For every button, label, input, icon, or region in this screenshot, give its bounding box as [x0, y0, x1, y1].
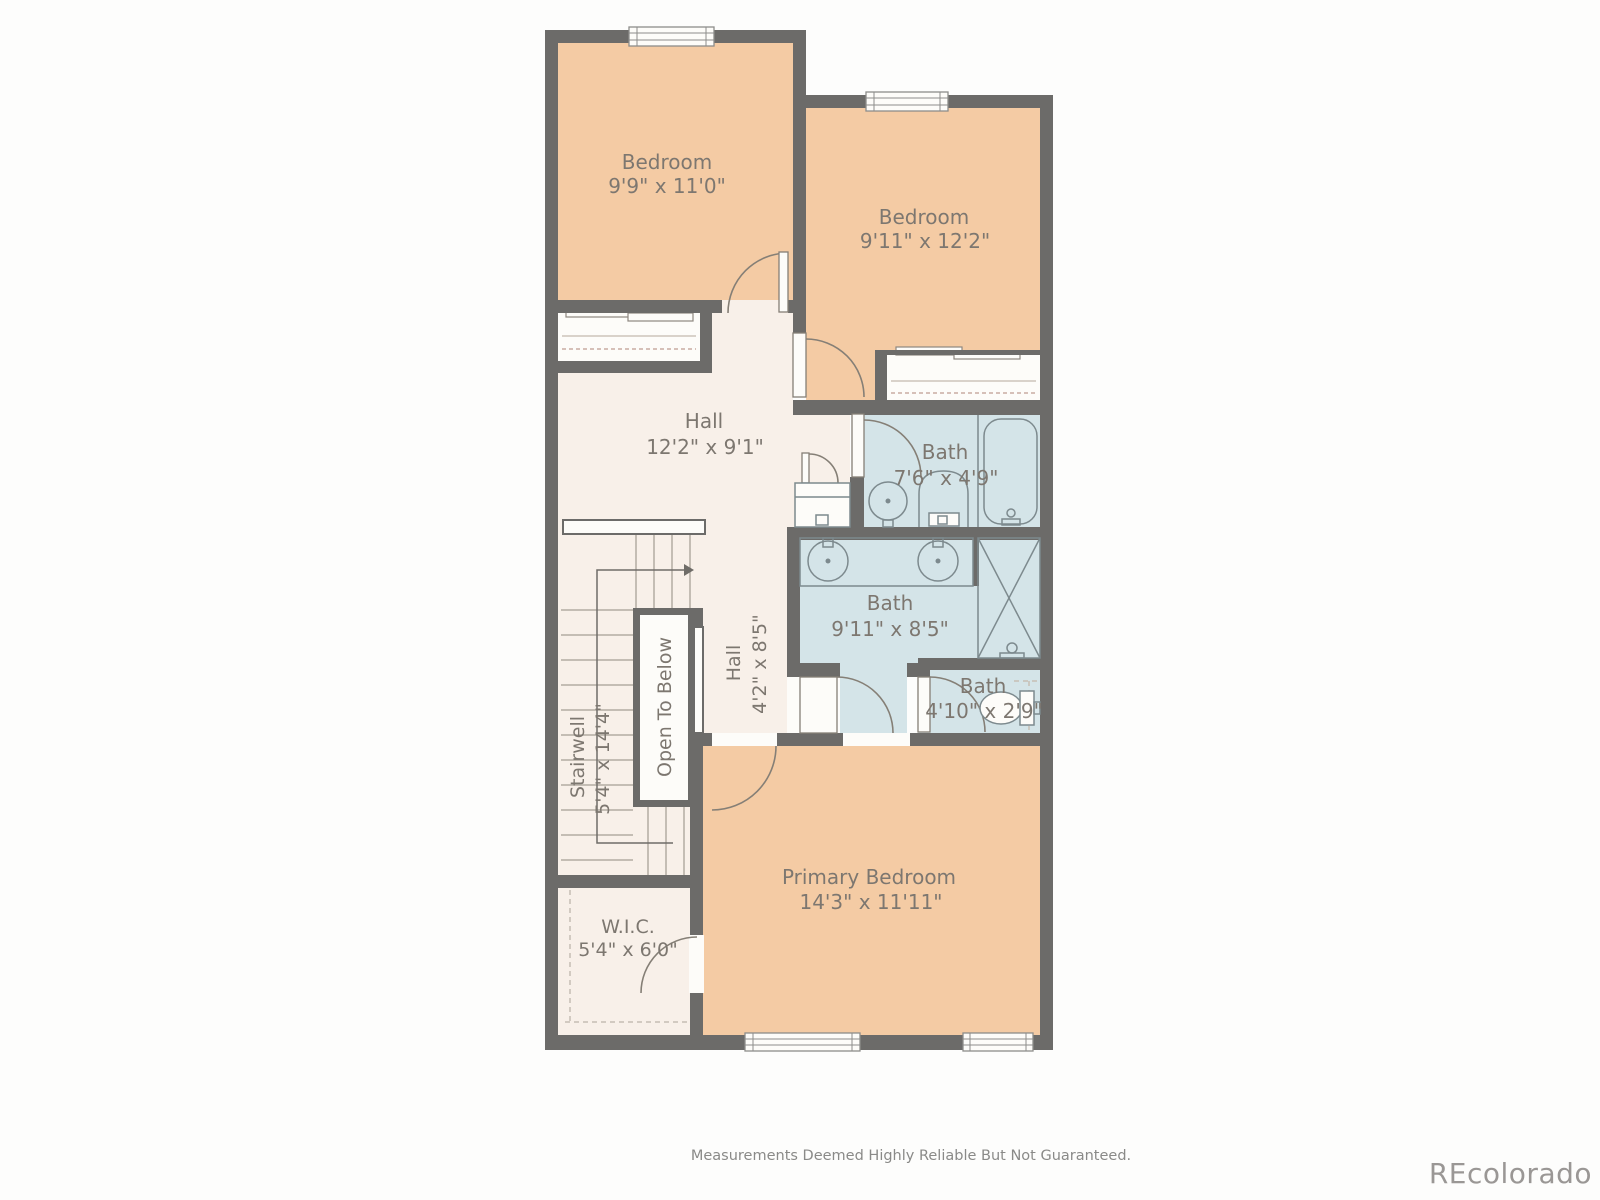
bath-1-dims: 7'6" x 4'9"	[894, 466, 999, 490]
bath-1-label: Bath	[922, 440, 969, 464]
bath-3-label: Bath	[960, 674, 1007, 698]
bath-2-door-leaf	[800, 677, 837, 733]
wic-label: W.I.C.	[601, 916, 655, 938]
stairwell-label: Stairwell	[567, 716, 589, 798]
hall-upper-label: Hall	[685, 409, 723, 433]
floorplan-page: Bedroom 9'9" x 11'0" Bedroom 9'11" x 12'…	[0, 0, 1600, 1200]
bedroom-1-label: Bedroom	[622, 150, 712, 174]
hall-linen-cabinet	[795, 483, 850, 527]
window-icon	[629, 27, 714, 46]
bath-2-dims: 9'11" x 8'5"	[831, 617, 949, 641]
recolorado-logo: REcolorado	[1429, 1157, 1592, 1190]
hall-lower-label: Hall	[723, 645, 745, 682]
hall-closet-door-leaf	[802, 453, 809, 483]
bedroom-2-closet	[887, 355, 1040, 402]
hall-doorway-floor	[712, 313, 793, 373]
hall-upper-dims: 12'2" x 9'1"	[646, 435, 764, 459]
bedroom-1-dims: 9'9" x 11'0"	[608, 174, 726, 198]
bath-2-label: Bath	[867, 591, 914, 615]
bedroom-1-door-gap	[722, 300, 788, 313]
window-icon	[963, 1033, 1033, 1051]
bedroom-1-door-leaf	[779, 252, 788, 312]
primary-bedroom-dims: 14'3" x 11'11"	[799, 890, 942, 914]
window-icon	[745, 1033, 860, 1051]
wic-dims: 5'4" x 6'0"	[578, 939, 678, 961]
closet-1-bypass-door	[628, 313, 693, 321]
bedroom-2-dims: 9'11" x 12'2"	[860, 229, 990, 253]
floor-plan: Bedroom 9'9" x 11'0" Bedroom 9'11" x 12'…	[0, 0, 1600, 1200]
wic-floor	[558, 888, 690, 1035]
primary-door-gap	[712, 733, 777, 746]
wic-door-gap	[689, 935, 704, 993]
bath-3-dims: 4'10" x 2'9"	[925, 699, 1043, 723]
bath-2-door-gap	[787, 677, 800, 733]
primary-bedroom-label: Primary Bedroom	[782, 865, 956, 889]
bath-passage-opening	[845, 733, 910, 746]
bath-1-door-leaf	[852, 414, 864, 477]
bedroom-2-label: Bedroom	[879, 205, 969, 229]
bath-2-passage-floor	[840, 658, 907, 733]
disclaimer-text: Measurements Deemed Highly Reliable But …	[511, 1148, 1311, 1164]
window-icon	[866, 92, 948, 111]
bedroom-2-door-leaf	[793, 333, 806, 397]
stair-railing-top	[563, 520, 705, 534]
stairwell-dims: 5'4" x 14'4"	[592, 703, 614, 815]
open-to-below-label: Open To Below	[654, 637, 676, 777]
hall-lower-dims: 4'2" x 8'5"	[749, 614, 771, 714]
